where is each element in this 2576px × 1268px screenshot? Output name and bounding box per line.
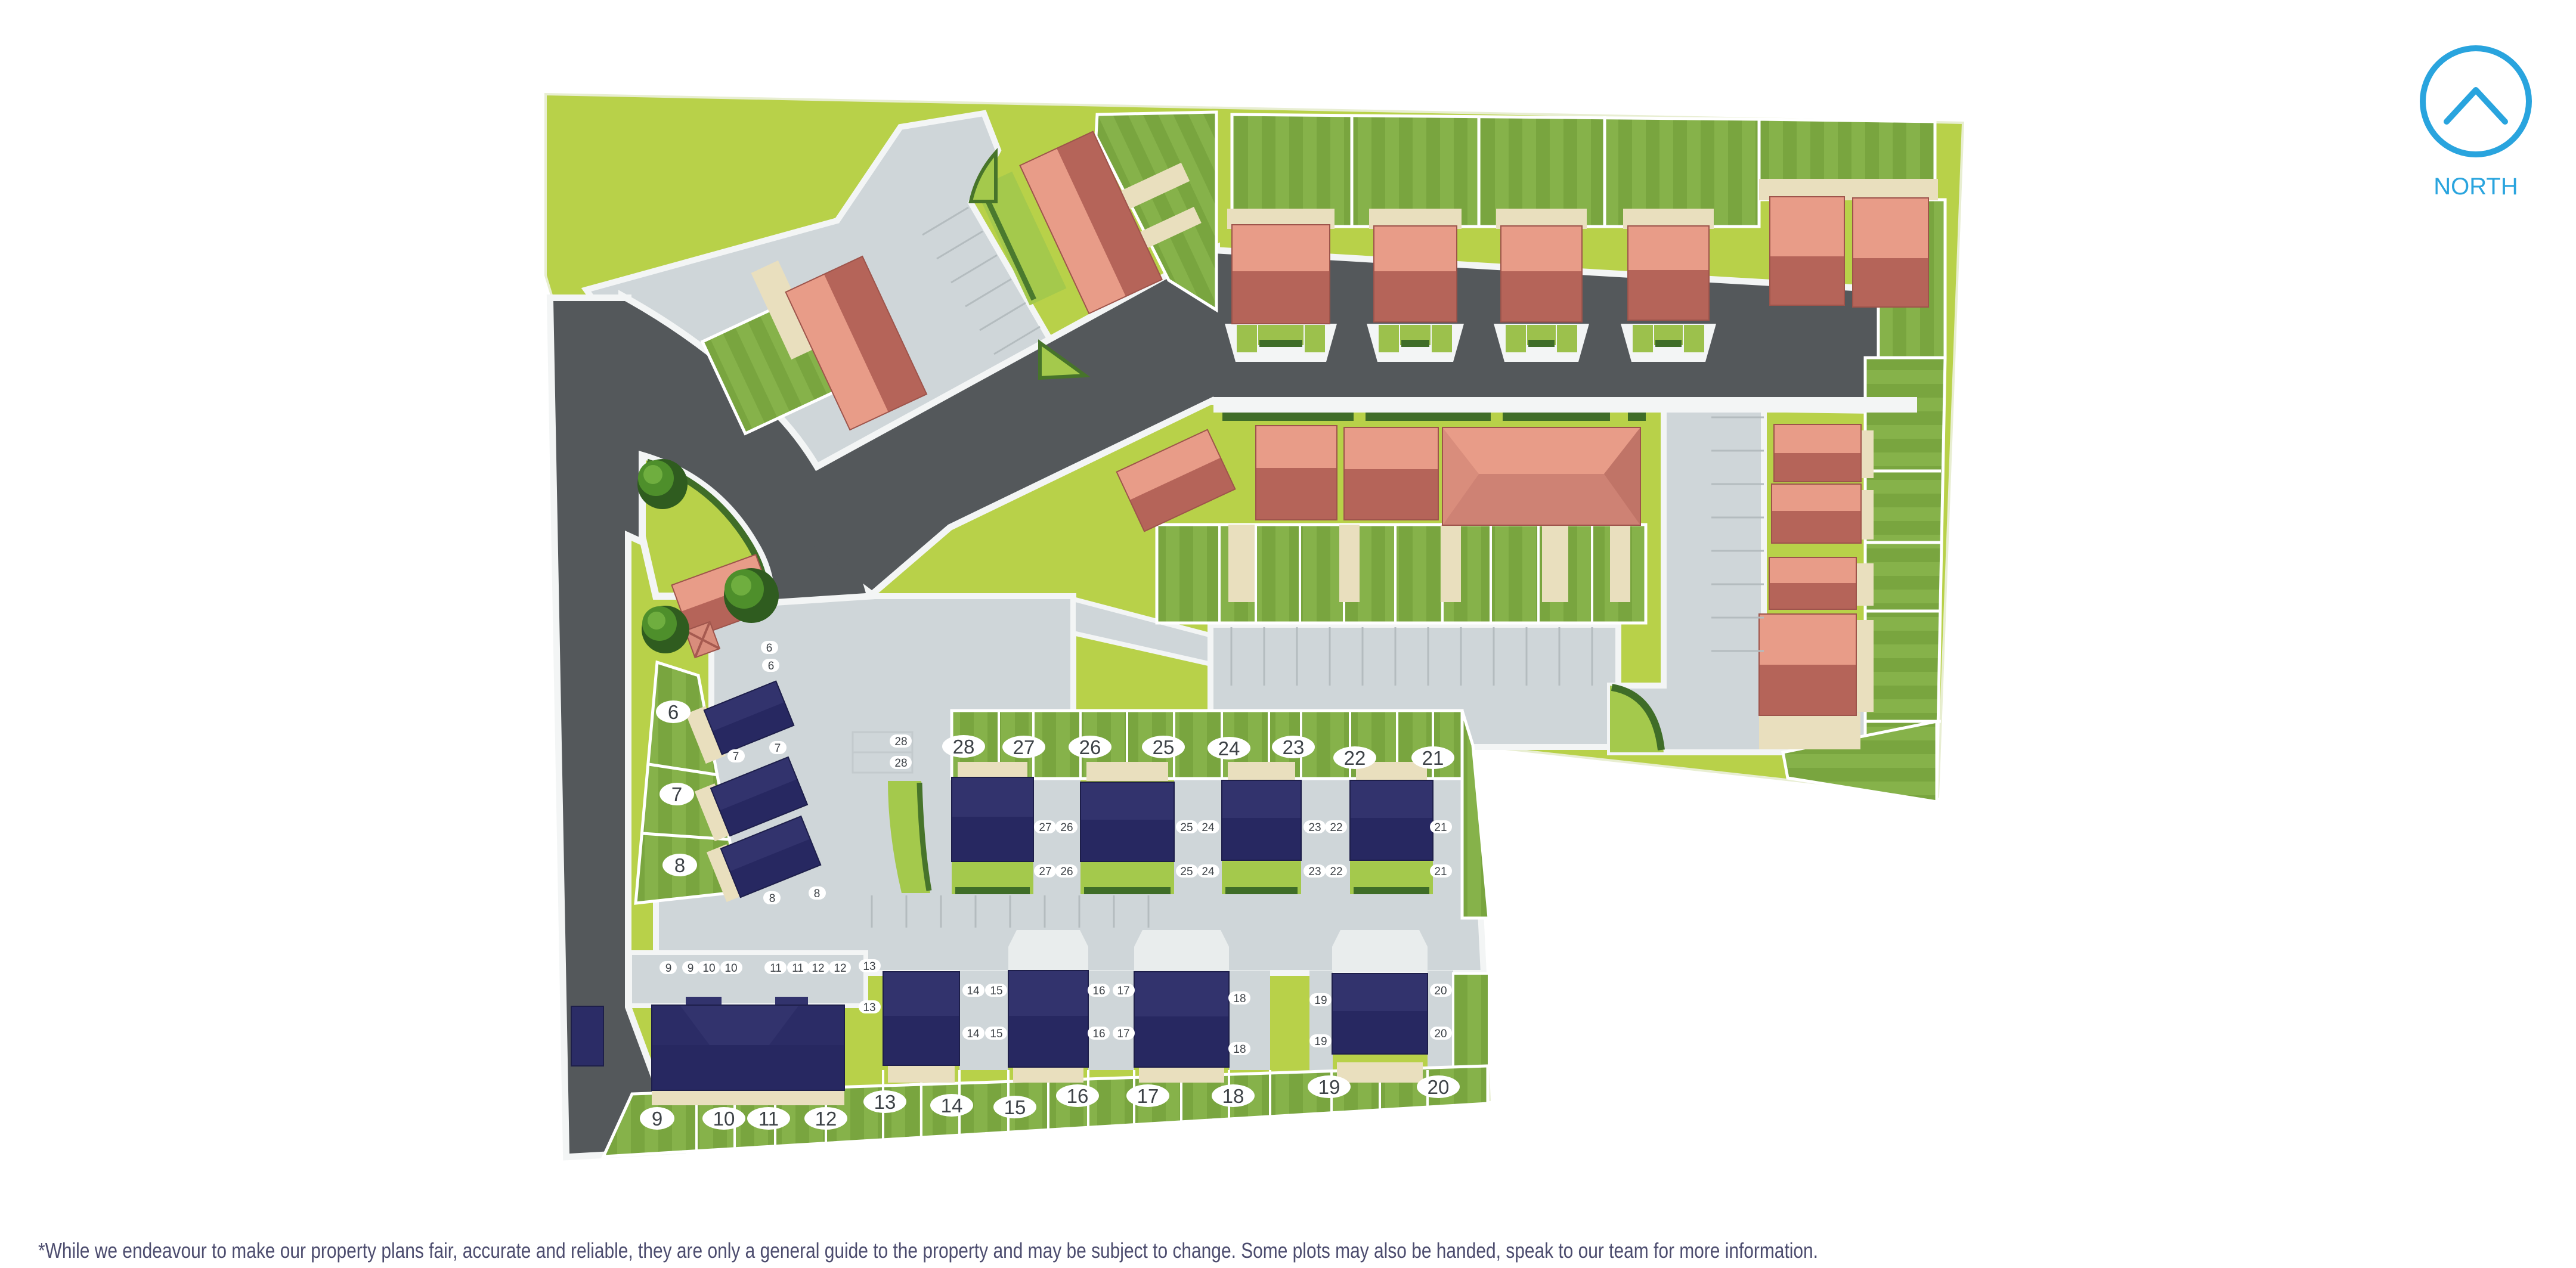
svg-text:27: 27 (1039, 866, 1051, 878)
svg-text:11: 11 (758, 1108, 779, 1130)
svg-text:12: 12 (815, 1108, 837, 1130)
svg-text:16: 16 (1092, 1028, 1105, 1040)
svg-text:23: 23 (1308, 866, 1321, 878)
svg-text:17: 17 (1117, 985, 1129, 997)
svg-text:10: 10 (702, 962, 715, 975)
svg-text:25: 25 (1180, 866, 1193, 878)
svg-text:6: 6 (766, 642, 773, 655)
svg-text:23: 23 (1283, 736, 1305, 758)
svg-text:26: 26 (1079, 736, 1101, 758)
svg-text:22: 22 (1330, 821, 1342, 834)
svg-text:25: 25 (1180, 821, 1193, 834)
svg-text:19: 19 (1314, 994, 1327, 1007)
svg-text:12: 12 (834, 962, 846, 975)
svg-text:28: 28 (894, 757, 907, 770)
svg-text:26: 26 (1060, 821, 1073, 834)
svg-text:15: 15 (990, 1028, 1002, 1040)
svg-text:19: 19 (1318, 1076, 1340, 1098)
svg-text:21: 21 (1434, 866, 1447, 878)
svg-text:22: 22 (1344, 747, 1366, 769)
svg-text:14: 14 (967, 1028, 980, 1040)
svg-text:13: 13 (863, 1002, 875, 1014)
svg-text:20: 20 (1434, 1028, 1447, 1040)
svg-text:11: 11 (770, 962, 782, 975)
svg-text:27: 27 (1039, 821, 1051, 834)
svg-text:21: 21 (1422, 747, 1444, 769)
svg-text:8: 8 (769, 892, 776, 905)
svg-text:7: 7 (775, 742, 781, 755)
svg-text:16: 16 (1067, 1085, 1089, 1107)
svg-text:28: 28 (953, 736, 975, 758)
svg-text:18: 18 (1233, 1043, 1246, 1056)
svg-text:6: 6 (668, 701, 679, 723)
svg-text:24: 24 (1202, 866, 1215, 878)
svg-text:6: 6 (768, 660, 775, 672)
svg-text:7: 7 (671, 783, 682, 805)
svg-text:17: 17 (1137, 1085, 1159, 1107)
svg-text:23: 23 (1308, 821, 1321, 834)
svg-text:20: 20 (1428, 1076, 1450, 1098)
svg-text:12: 12 (812, 962, 824, 975)
svg-text:8: 8 (814, 888, 821, 900)
svg-text:14: 14 (941, 1095, 963, 1117)
svg-text:18: 18 (1233, 993, 1246, 1005)
svg-text:22: 22 (1330, 866, 1342, 878)
svg-text:9: 9 (665, 962, 672, 975)
svg-text:15: 15 (990, 985, 1002, 997)
svg-text:20: 20 (1434, 985, 1447, 997)
svg-text:14: 14 (967, 985, 980, 997)
svg-text:28: 28 (894, 736, 907, 748)
svg-text:17: 17 (1117, 1028, 1129, 1040)
svg-text:24: 24 (1202, 821, 1215, 834)
svg-text:10: 10 (713, 1108, 735, 1130)
svg-text:10: 10 (724, 962, 737, 975)
svg-text:8: 8 (674, 854, 685, 876)
svg-text:13: 13 (863, 960, 875, 973)
svg-text:19: 19 (1314, 1036, 1327, 1048)
svg-text:16: 16 (1092, 985, 1105, 997)
svg-text:13: 13 (874, 1091, 896, 1113)
svg-text:15: 15 (1004, 1096, 1026, 1118)
svg-text:24: 24 (1218, 737, 1240, 759)
svg-text:25: 25 (1153, 736, 1175, 758)
svg-text:NORTH: NORTH (2433, 173, 2518, 200)
svg-text:26: 26 (1060, 866, 1073, 878)
svg-text:11: 11 (792, 962, 804, 975)
svg-text:9: 9 (688, 962, 694, 975)
svg-text:18: 18 (1222, 1085, 1244, 1107)
svg-text:27: 27 (1013, 736, 1035, 758)
svg-text:*While we endeavour to make ou: *While we endeavour to make our property… (38, 1238, 1818, 1263)
svg-text:7: 7 (733, 751, 739, 763)
svg-text:21: 21 (1434, 821, 1447, 834)
svg-text:9: 9 (652, 1108, 662, 1130)
